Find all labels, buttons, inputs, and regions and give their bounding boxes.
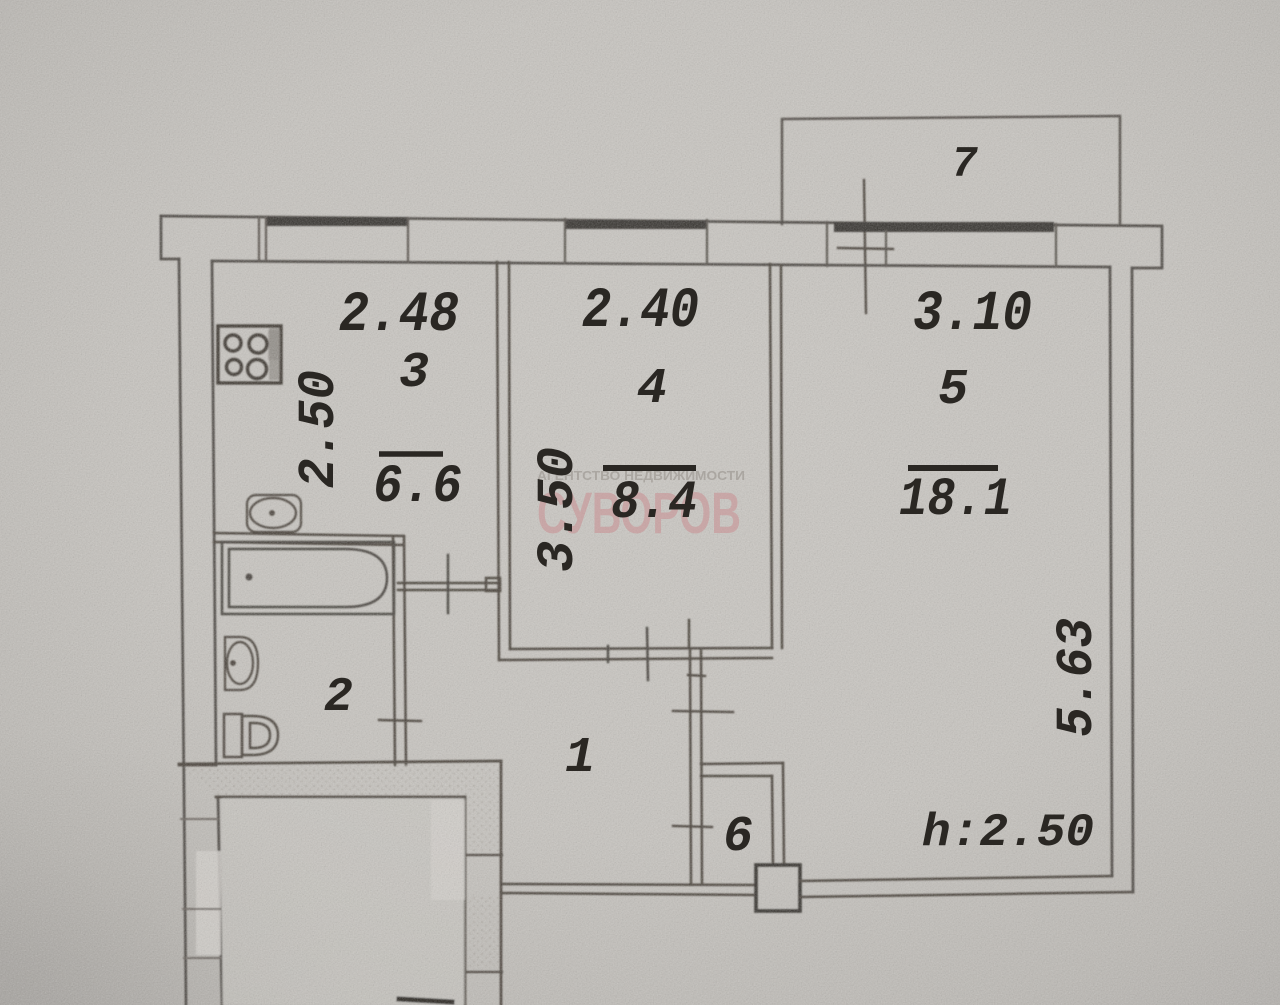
svg-text:18.1: 18.1 [899, 470, 1012, 531]
svg-text:5.63: 5.63 [1048, 618, 1107, 737]
svg-text:6.6: 6.6 [373, 457, 462, 518]
svg-text:7: 7 [951, 140, 978, 190]
svg-text:2: 2 [324, 671, 353, 725]
svg-text:5: 5 [938, 362, 968, 419]
svg-text:4: 4 [637, 361, 667, 418]
svg-text:8.4: 8.4 [611, 473, 697, 534]
svg-text:2.50: 2.50 [290, 370, 349, 488]
svg-text:3.50: 3.50 [529, 447, 588, 572]
svg-text:3: 3 [399, 345, 429, 402]
svg-text:3.10: 3.10 [913, 283, 1032, 347]
svg-text:6: 6 [723, 809, 753, 866]
svg-text:1: 1 [565, 730, 595, 787]
svg-text:2.40: 2.40 [582, 280, 699, 344]
svg-text:h:2.50: h:2.50 [922, 807, 1094, 859]
svg-text:2.48: 2.48 [339, 284, 459, 348]
